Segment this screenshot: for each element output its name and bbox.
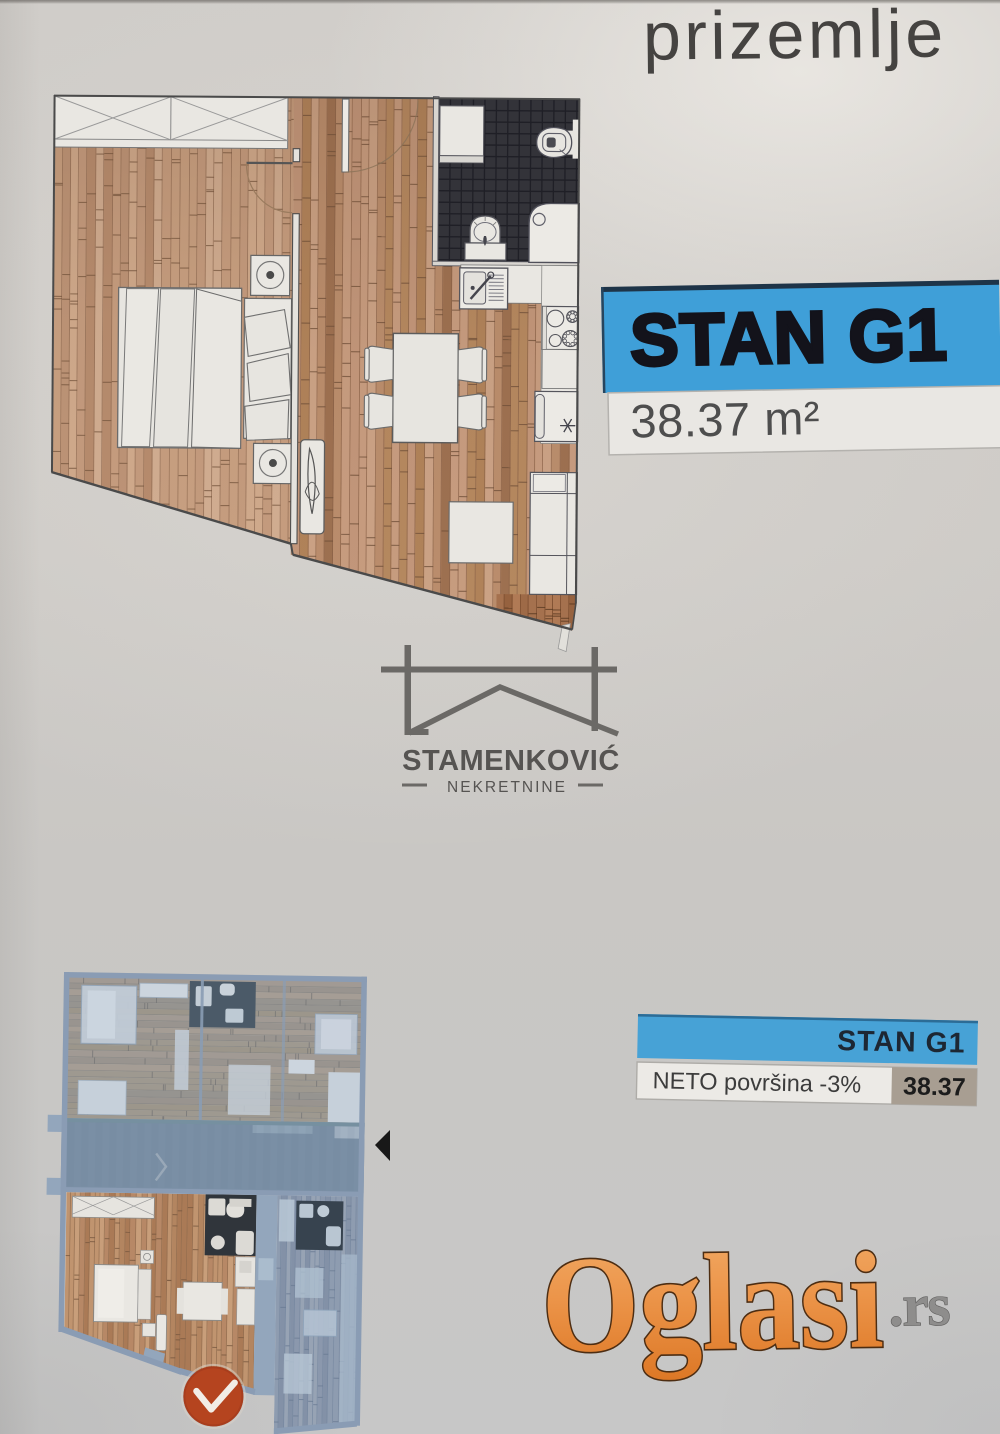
svg-text:NEKRETNINE: NEKRETNINE [447,779,567,796]
svg-text:STAN G1: STAN G1 [629,295,948,382]
svg-text:STAN G1: STAN G1 [837,1025,966,1060]
svg-text:STAMENKOVIĆ: STAMENKOVIĆ [402,743,620,777]
svg-text:NETO površina -3%: NETO površina -3% [652,1067,861,1097]
svg-text:38.37 m²: 38.37 m² [630,391,820,447]
svg-text:Oglasi: Oglasi [540,1223,884,1381]
svg-text:prizemlje: prizemlje [643,0,947,75]
svg-text:.rs: .rs [888,1272,950,1339]
svg-text:38.37: 38.37 [903,1072,966,1101]
